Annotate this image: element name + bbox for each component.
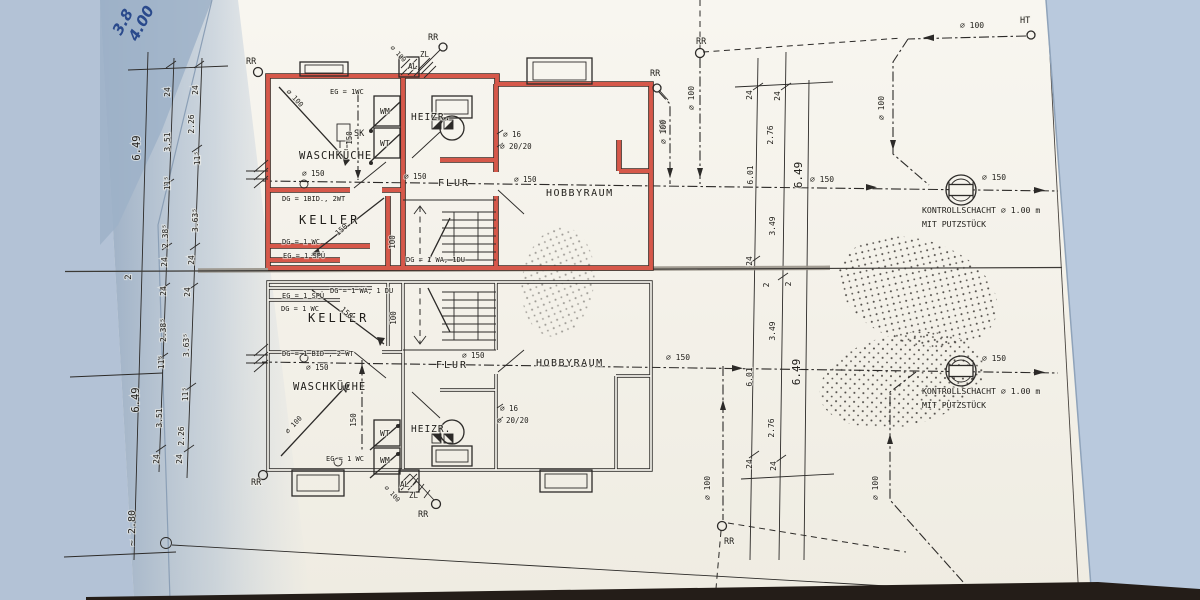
drawing-label: MIT PUTZSTÜCK <box>922 219 986 229</box>
drawing-label: 6.49 <box>790 359 803 386</box>
drawing-label: HEIZR. <box>411 424 451 435</box>
drawing-label: DG = 1 WA, 1 DU <box>330 287 393 295</box>
drawing-label: 11⁵ <box>157 355 166 369</box>
drawing-label: 11⁵ <box>193 151 202 165</box>
drawing-label: 6.01 <box>746 165 755 184</box>
drawing-label: RR <box>418 510 429 520</box>
drawing-label: ∅ 100 <box>703 476 712 500</box>
drawing-label: RR <box>246 57 257 67</box>
drawing-label: 2.38⁵ <box>159 318 168 342</box>
drawing-label: 6.01 <box>745 367 754 386</box>
drawing-label: FLUR <box>438 178 470 189</box>
drawing-label: 3.63⁵ <box>182 333 191 357</box>
drawing-label: 6.49 <box>130 387 142 412</box>
drawing-label: ∅ 20/20 <box>500 142 532 151</box>
drawing-label: RR <box>696 37 707 47</box>
drawing-label: 11⁵ <box>163 176 172 190</box>
drawing-label: 11⁵ <box>181 387 190 401</box>
drawing-label: KELLER <box>308 311 369 325</box>
drawing-label: 2 <box>124 274 134 279</box>
drawing-label: 3.51 <box>155 408 164 427</box>
drawing-label: 24 <box>745 459 754 469</box>
drawing-label: ∅ 150 <box>302 169 325 178</box>
drawing-label: ∅ 150 <box>514 175 537 184</box>
drawing-label: KELLER <box>299 213 360 227</box>
drawing-label: 150 <box>349 413 358 427</box>
drawing-label: WM <box>380 107 390 116</box>
drawing-label: WM <box>380 456 390 465</box>
drawing-label: 6.49 <box>792 162 805 189</box>
drawing-label: AL. <box>400 480 414 489</box>
photographed-blueprint: 3.84.00 <box>0 0 1200 600</box>
drawing-label: 24 <box>773 91 782 101</box>
blueprint-photo: 3.84.00 <box>0 0 1200 600</box>
drawing-label: 2 <box>784 281 793 286</box>
drawing-label: RR <box>724 537 735 547</box>
drawing-label: RR <box>251 478 262 488</box>
drawing-label: 24 <box>163 87 172 97</box>
drawing-label: FLUR <box>436 360 468 371</box>
drawing-label: ∅ 100 <box>960 21 984 30</box>
drawing-label: ZL <box>420 50 430 59</box>
drawing-label: 24 <box>191 85 200 95</box>
drawing-label: HOBBYRAUM <box>536 358 604 369</box>
drawing-label: RR <box>428 33 439 43</box>
drawing-label: 100 <box>388 235 397 249</box>
drawing-label: ∅ 150 <box>982 173 1006 182</box>
drawing-label: 2 <box>762 282 771 287</box>
drawing-label: 100 <box>389 311 398 325</box>
drawing-label: 150 <box>345 131 354 145</box>
drawing-label: ∅ 100 <box>877 96 886 120</box>
drawing-label: ZL <box>409 491 419 500</box>
drawing-label: ∅ 150 <box>306 363 329 372</box>
drawing-label: SK <box>354 129 365 139</box>
drawing-label: 2.76 <box>767 418 776 437</box>
drawing-label: DG = 1 WA, 1DU <box>406 256 465 264</box>
drawing-label: EG = 1WC <box>330 88 364 96</box>
drawing-label: AL <box>408 62 418 71</box>
drawing-label: EG = 1 WC <box>326 455 364 463</box>
drawing-label: RR <box>650 69 661 79</box>
drawing-label: ∅ 100 <box>659 120 668 144</box>
drawing-label: ∅ 150 <box>462 351 485 360</box>
drawing-label: 24 <box>175 454 184 464</box>
drawing-label: ∅ 150 <box>666 353 690 362</box>
drawing-label: ∅ 150 <box>982 354 1006 363</box>
drawing-label: KONTROLLSCHACHT ∅ 1.00 m <box>922 205 1040 215</box>
drawing-label: HEIZR. <box>411 112 451 123</box>
drawing-label: DG = 1 BID , 2 WT <box>282 350 354 358</box>
drawing-label: 24 <box>183 287 192 297</box>
drawing-label: 2.26 <box>187 114 196 133</box>
drawing-label: 24 <box>745 90 754 100</box>
drawing-label: WASCHKÜCHE <box>293 380 366 393</box>
drawing-label: 3.49 <box>768 216 777 235</box>
drawing-label: EG = 1 SPÜ <box>283 251 325 260</box>
drawing-label: 24 <box>152 454 161 464</box>
drawing-label: 24 <box>159 286 168 296</box>
drawing-label: HT <box>1020 16 1030 26</box>
drawing-label: EG = 1 SPÜ <box>282 291 324 300</box>
drawing-label: ∅ 100 <box>687 86 696 110</box>
drawing-label: 24 <box>187 255 196 265</box>
drawing-label: 24 <box>745 256 754 266</box>
drawing-label: 3.49 <box>768 321 777 340</box>
drawing-label: ~ 2.80 <box>127 510 138 546</box>
drawing-label: ∅ 100 <box>871 476 880 500</box>
drawing-label: MIT PUTZSTÜCK <box>922 400 986 410</box>
drawing-label: 2.38⁵ <box>161 224 170 248</box>
drawing-label: 2.26 <box>177 426 186 445</box>
drawing-label: WASCHKÜCHE <box>299 149 372 162</box>
drawing-label: 3.51 <box>163 132 172 151</box>
drawing-label: ∅ 150 <box>404 172 427 181</box>
drawing-label: 2.76 <box>766 125 775 144</box>
drawing-label: KONTROLLSCHACHT ∅ 1.00 m <box>922 386 1040 396</box>
drawing-label: 3.63⁵ <box>191 208 200 232</box>
drawing-label: 6.49 <box>131 135 143 160</box>
drawing-label: DG = 1 WC <box>282 238 320 246</box>
drawing-label: 24 <box>160 257 169 267</box>
drawing-label: 24 <box>769 461 778 471</box>
drawing-label: HOBBYRAUM <box>546 188 614 199</box>
drawing-label: ∅ 16 <box>503 130 522 139</box>
drawing-label: DG = 1BID., 2WT <box>282 195 346 203</box>
drawing-label: ∅ 20/20 <box>497 416 529 425</box>
drawing-label: WT <box>380 429 390 438</box>
drawing-label: ∅ 150 <box>810 175 834 184</box>
drawing-label: ∅ 16 <box>500 404 519 413</box>
drawing-label: WT <box>380 139 390 148</box>
